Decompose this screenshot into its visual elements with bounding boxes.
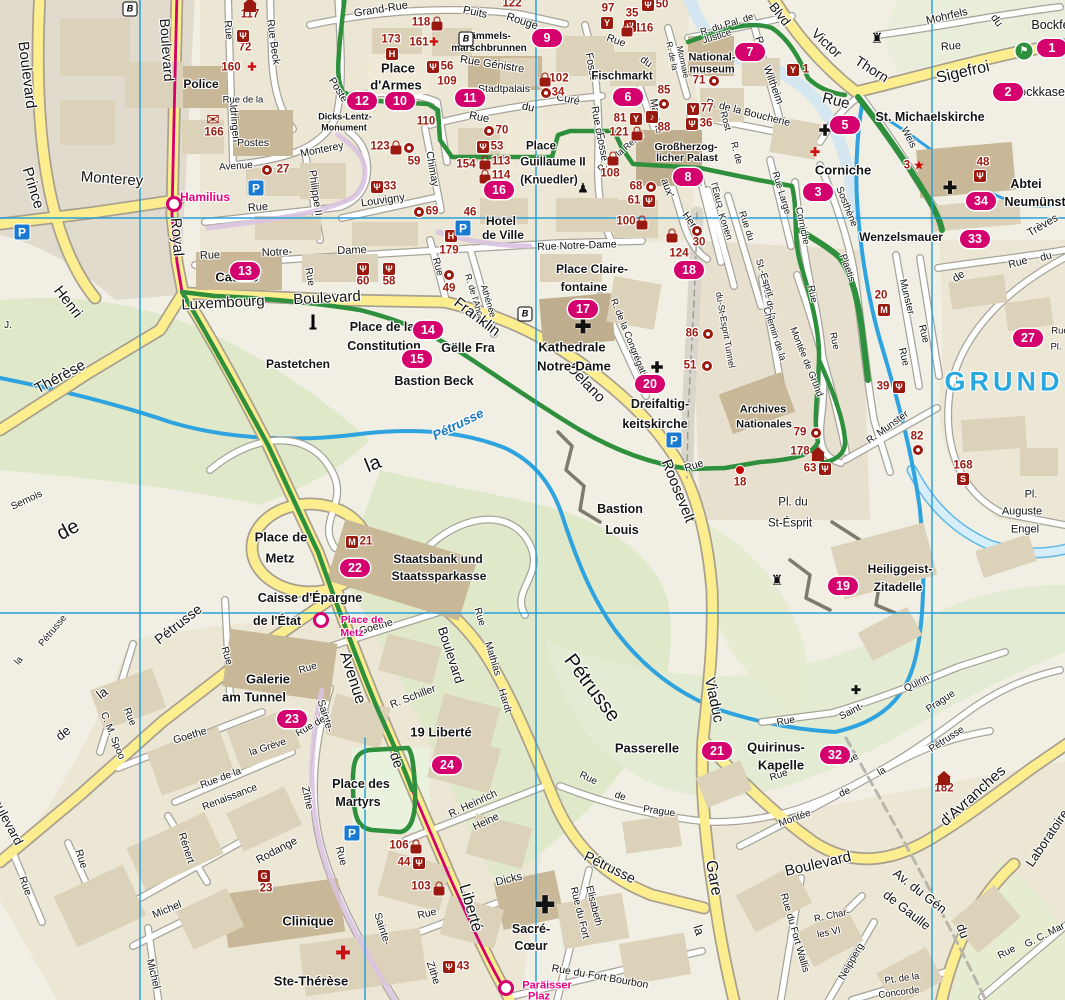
crossB-icon: ✚	[943, 180, 957, 197]
poi-number: 43	[457, 961, 470, 973]
poi-number: 88	[658, 122, 671, 134]
circ-icon	[262, 165, 272, 175]
poi-number: 56	[441, 61, 454, 73]
crossR-icon: ✚	[810, 146, 820, 158]
place-label: Neumünster	[1005, 196, 1065, 209]
poi-number: 46	[464, 207, 477, 219]
poi-number: 50	[656, 0, 669, 11]
street-label: Rue	[248, 202, 269, 214]
poi-number: 51	[684, 360, 697, 372]
station-icon	[498, 980, 514, 996]
place-label: Hotel	[486, 215, 516, 227]
circ-icon	[692, 226, 702, 236]
place-label: Ste-Thérèse	[274, 975, 348, 988]
place-label: Monument	[321, 124, 367, 133]
place-label: Kathedrale	[538, 341, 605, 354]
fork-icon: Ψ	[893, 381, 905, 393]
street-label: J.	[4, 321, 12, 331]
poi-number: 178	[790, 446, 809, 458]
station-label: Plaz	[528, 992, 550, 1000]
parking-icon: P	[345, 826, 360, 841]
poi-number: 53	[491, 141, 504, 153]
tour-stop-marker[interactable]: 3	[803, 183, 833, 201]
gsq-icon: G	[258, 870, 270, 882]
tour-stop-marker[interactable]: 27	[1013, 329, 1043, 347]
place-label: Louis	[605, 524, 638, 537]
poi-number: 27	[277, 164, 290, 176]
street-label: Postes	[237, 138, 269, 149]
street-label: du	[1039, 250, 1053, 263]
parking-icon: P	[249, 181, 264, 196]
street-label: Pl. du	[778, 497, 807, 509]
bag-icon	[632, 132, 643, 141]
poi-number: 58	[383, 276, 396, 288]
metro-icon: M	[878, 304, 890, 316]
street-label: Boulevard	[158, 18, 176, 82]
poi-number: 39	[877, 381, 890, 393]
place-label: Großherzog-	[655, 142, 718, 153]
fork-icon: Ψ	[686, 118, 698, 130]
poi-number: 79	[794, 427, 807, 439]
tour-stop-marker[interactable]: 32	[820, 746, 850, 764]
place-label: de Ville	[482, 229, 524, 241]
poi-number: 49	[443, 283, 456, 295]
fork-icon: Ψ	[357, 263, 369, 275]
tour-stop-marker[interactable]: 14	[413, 321, 443, 339]
poi-number: 97	[602, 3, 615, 15]
street-label: Rue	[828, 331, 841, 350]
street-label: Rue de la	[223, 95, 264, 105]
poi-number: 60	[357, 276, 370, 288]
place-label: Abtei	[1010, 178, 1041, 191]
bag-icon	[608, 157, 619, 166]
poi-number: 30	[693, 237, 706, 249]
sbahn-icon: S	[957, 473, 969, 485]
tour-stop-marker[interactable]: 33	[960, 230, 990, 248]
district-label: GRUND	[945, 369, 1064, 396]
music-icon: ♪	[646, 111, 658, 123]
poi-number: 82	[911, 431, 924, 443]
tour-stop-marker[interactable]: 17	[568, 300, 598, 318]
poi-number: 48	[977, 157, 990, 169]
station-icon	[166, 196, 182, 212]
place-label: Zitadelle	[874, 581, 923, 593]
tour-stop-marker[interactable]: 9	[532, 29, 562, 47]
station-label: Metz	[340, 628, 363, 639]
wine-icon: Y	[601, 17, 613, 29]
street-label: Notre-	[262, 247, 293, 259]
crossR-icon: ✚	[335, 944, 350, 962]
place-label: Metz	[266, 552, 295, 565]
place-label: Bastion Beck	[394, 375, 473, 388]
poi-number: 100	[616, 216, 635, 228]
place-label: 19 Liberté	[410, 726, 471, 739]
poi-number: 108	[600, 168, 619, 180]
poi-number: 35	[626, 8, 639, 20]
poi-number: 20	[875, 290, 888, 302]
tour-stop-marker[interactable]: 7	[735, 43, 765, 61]
poi-number: 69	[426, 206, 439, 218]
place-label: Galerie	[246, 673, 290, 686]
place-label: de l'État	[253, 615, 301, 628]
place-label: Caisse d'Épargne	[258, 592, 362, 605]
rook-icon: ♜	[771, 573, 784, 587]
poi-number: 110	[417, 116, 436, 128]
bag-icon	[637, 221, 648, 230]
poi-number: 160	[221, 62, 240, 74]
place-label: Kapelle	[758, 759, 804, 772]
fork-icon: Ψ	[413, 857, 425, 869]
fork-icon: Ψ	[443, 961, 455, 973]
poi-number: 59	[408, 156, 421, 168]
poi-number: 123	[370, 141, 389, 153]
poi-number: 161	[409, 37, 428, 49]
place-label: Archives	[740, 405, 786, 416]
place-label: Staatsbank und	[393, 553, 482, 565]
circ-icon	[811, 428, 821, 438]
bag-icon	[432, 22, 443, 31]
place-label: Gëlle Fra	[441, 342, 495, 355]
env-icon: ✉	[206, 113, 219, 129]
bag-icon	[540, 78, 551, 87]
place-label: Martyrs	[335, 796, 380, 809]
place-label: Place	[526, 141, 556, 153]
bag-icon	[480, 161, 491, 170]
station-icon	[313, 612, 329, 628]
bag-icon	[434, 887, 445, 896]
parking-icon: P	[667, 433, 682, 448]
binfo-icon: B	[518, 307, 533, 322]
wine-icon: Y	[787, 64, 799, 76]
poi-number: 118	[412, 17, 431, 29]
poi-number: 121	[609, 127, 628, 139]
street-label: Luxembourg	[181, 293, 265, 312]
crossB-icon: ✚	[651, 361, 664, 376]
place-label: Guillaume II	[520, 157, 585, 169]
place-label: Place des	[332, 778, 390, 791]
poi-number: 63	[804, 463, 817, 475]
circ-icon	[484, 126, 494, 136]
tour-stop-marker[interactable]: 24	[432, 756, 462, 774]
street-label: Rue	[1051, 326, 1065, 336]
tour-stop-marker[interactable]: 1	[1037, 39, 1065, 57]
tour-stop-marker[interactable]: 34	[966, 192, 996, 210]
poi-number: 168	[953, 460, 972, 472]
crossR-icon: ✚	[247, 63, 256, 74]
dotR-icon	[736, 466, 744, 474]
fork-icon: Ψ	[642, 0, 654, 11]
street-label: Monterey	[80, 169, 143, 188]
circ-icon	[404, 143, 414, 153]
crossB-icon: ✚	[535, 894, 555, 918]
poi-number: 72	[239, 42, 252, 54]
poi-number: 71	[693, 75, 706, 87]
place-label: Cœur	[514, 940, 547, 953]
poi-number: 23	[260, 883, 273, 895]
tour-stop-marker[interactable]: 10	[385, 92, 415, 110]
place-label: Fischmarkt	[591, 71, 652, 83]
station-label: Place de	[341, 615, 384, 626]
street-label: Auguste	[1002, 507, 1042, 518]
poi-number: 18	[734, 477, 747, 489]
city-map[interactable]: BoulevardPrinceHenriThérèseMontereyBoule…	[0, 0, 1065, 1000]
place-label: licher Palast	[656, 153, 718, 164]
tour-stop-marker[interactable]: 8	[673, 168, 703, 186]
tour-stop-marker[interactable]: 21	[702, 742, 732, 760]
tour-stop-marker[interactable]: 13	[230, 262, 260, 280]
place-label: Wenzelsmauer	[859, 231, 943, 243]
poi-number: 124	[669, 248, 688, 260]
rook-icon: ♜	[871, 31, 884, 45]
tour-stop-marker[interactable]: 12	[347, 92, 377, 110]
poi-number: 179	[439, 245, 458, 257]
crossR-icon: ✚	[429, 38, 438, 49]
place-label: Pastetchen	[266, 358, 330, 370]
poi-number: 116	[635, 23, 654, 35]
poi-number: 61	[628, 195, 641, 207]
parking-icon: P	[15, 225, 30, 240]
street-label: Engel	[1011, 525, 1039, 536]
circ-icon	[702, 361, 712, 371]
tour-stop-marker[interactable]: 5	[830, 116, 860, 134]
place-label: Nationales	[736, 420, 792, 431]
street-label: St-Ésprit	[768, 518, 812, 530]
tour-stop-marker[interactable]: 22	[340, 559, 370, 577]
circ-icon	[703, 329, 713, 339]
street-label: Pl.	[1025, 490, 1038, 501]
place-label: Heiliggeist-	[868, 563, 933, 575]
poi-number: 154	[456, 159, 475, 171]
poi-number: 34	[552, 87, 565, 99]
tour-stop-marker[interactable]: 19	[828, 577, 858, 595]
bag-icon	[411, 845, 422, 854]
poi-number: 81	[614, 113, 627, 125]
tour-stop-marker[interactable]: 20	[635, 375, 665, 393]
street-label: Royal	[168, 217, 186, 256]
hotel-icon: H	[386, 48, 398, 60]
crossB-icon: ✚	[851, 684, 861, 696]
statue-icon: ♟	[577, 182, 589, 195]
tour-stop-marker[interactable]: 2	[993, 83, 1023, 101]
poi-number: 68	[630, 181, 643, 193]
fork-icon: Ψ	[477, 141, 489, 153]
tour-stop-marker[interactable]: 16	[484, 181, 514, 199]
fork-icon: Ψ	[383, 263, 395, 275]
place-label: Clinique	[282, 915, 333, 928]
place-label: Corniche	[815, 164, 871, 177]
poi-number: 1	[803, 64, 809, 76]
house-icon	[938, 777, 950, 785]
poi-number: 21	[360, 536, 373, 548]
place-label: Bastion	[597, 503, 643, 516]
crossB-icon: ✚	[575, 317, 592, 337]
circ-icon	[444, 270, 454, 280]
street-label: Rue	[941, 41, 962, 53]
place-label: Sacré-	[512, 923, 550, 936]
circ-icon	[414, 207, 424, 217]
circ-icon	[541, 88, 551, 98]
station-label: Hamilius	[180, 191, 230, 203]
metro-icon: M	[346, 536, 358, 548]
poi-number: 113	[492, 156, 511, 168]
poi-number: 102	[549, 73, 568, 85]
tour-stop-marker[interactable]: 15	[402, 350, 432, 368]
poi-number: 44	[398, 857, 411, 869]
circ-icon	[709, 76, 719, 86]
wine-icon: Y	[687, 103, 699, 115]
place-label: National-	[688, 53, 735, 64]
binfo-icon: B	[459, 32, 474, 47]
bag-icon	[667, 234, 678, 243]
street-label: Dame	[337, 245, 367, 257]
flag-icon: ⚑	[1016, 43, 1033, 60]
place-label: Dicks-Lentz-	[318, 113, 372, 122]
street-label: Bockfels	[1031, 19, 1065, 32]
place-label: Place de	[255, 531, 308, 544]
street-label: Rue Notre-Dame	[537, 239, 617, 252]
place-label: Place de la	[350, 321, 415, 334]
fork-icon: Ψ	[643, 195, 655, 207]
street-label: du	[521, 101, 535, 114]
place-label: fontaine	[561, 281, 608, 293]
fork-icon: Ψ	[427, 61, 439, 73]
tour-stop-marker[interactable]: 11	[455, 89, 485, 107]
poi-number: 3	[904, 160, 910, 172]
place-label: Quirinus-	[747, 741, 805, 754]
place-label: (Knuedler)	[520, 175, 578, 187]
street-label: Stadtpalais	[478, 84, 530, 95]
poi-number: 103	[411, 881, 430, 893]
place-label: Place Claire-	[556, 263, 628, 275]
poi-number: 70	[496, 125, 509, 137]
place-label: Dreifaltig-	[631, 398, 689, 411]
place-label: keitskirche	[622, 418, 687, 431]
fork-icon: Ψ	[237, 30, 249, 42]
street-label: Rue	[222, 20, 234, 40]
fork-icon: Ψ	[819, 463, 831, 475]
place-label: St. Michaelskirche	[875, 111, 984, 124]
place-label: Notre-Dame	[537, 360, 611, 373]
circ-icon	[659, 99, 669, 109]
fork-icon: Ψ	[974, 170, 986, 182]
poi-number: 36	[700, 118, 713, 130]
poi-number: 173	[381, 34, 400, 46]
bag-icon	[622, 28, 633, 37]
street-label: Rue	[200, 250, 221, 262]
place-label: Police	[183, 78, 218, 90]
tour-stop-marker[interactable]: 6	[613, 88, 643, 106]
poi-number: 109	[437, 76, 456, 88]
obelisk-icon	[312, 315, 315, 328]
circ-icon	[646, 182, 656, 192]
bag-icon	[391, 146, 402, 155]
place-label: am Tunnel	[222, 691, 286, 704]
place-label: d'Armes	[370, 79, 422, 92]
house-icon	[812, 453, 824, 461]
place-label: Passerelle	[615, 742, 679, 755]
place-label: Staatssparkasse	[392, 570, 487, 582]
house-icon	[244, 4, 256, 12]
parking-icon: P	[456, 221, 471, 236]
star-icon: ★	[913, 159, 925, 172]
street-label: Boulevard	[293, 289, 361, 308]
poi-number: 122	[502, 0, 521, 10]
street-label: Pl.	[1050, 342, 1061, 352]
poi-number: 33	[384, 181, 397, 193]
binfo-icon: B	[123, 2, 138, 17]
poi-number: 77	[701, 103, 714, 115]
poi-number: 106	[389, 840, 408, 852]
place-label: Place	[381, 62, 415, 75]
poi-number: 86	[686, 328, 699, 340]
tour-stop-marker[interactable]: 18	[674, 261, 704, 279]
circ-icon	[913, 445, 923, 455]
wine-icon: Y	[630, 113, 642, 125]
tour-stop-marker[interactable]: 23	[277, 710, 307, 728]
street-label: Rue	[806, 284, 819, 303]
street-label: Rue	[302, 267, 315, 287]
poi-number: 85	[658, 85, 671, 97]
fork-icon: Ψ	[371, 181, 383, 193]
